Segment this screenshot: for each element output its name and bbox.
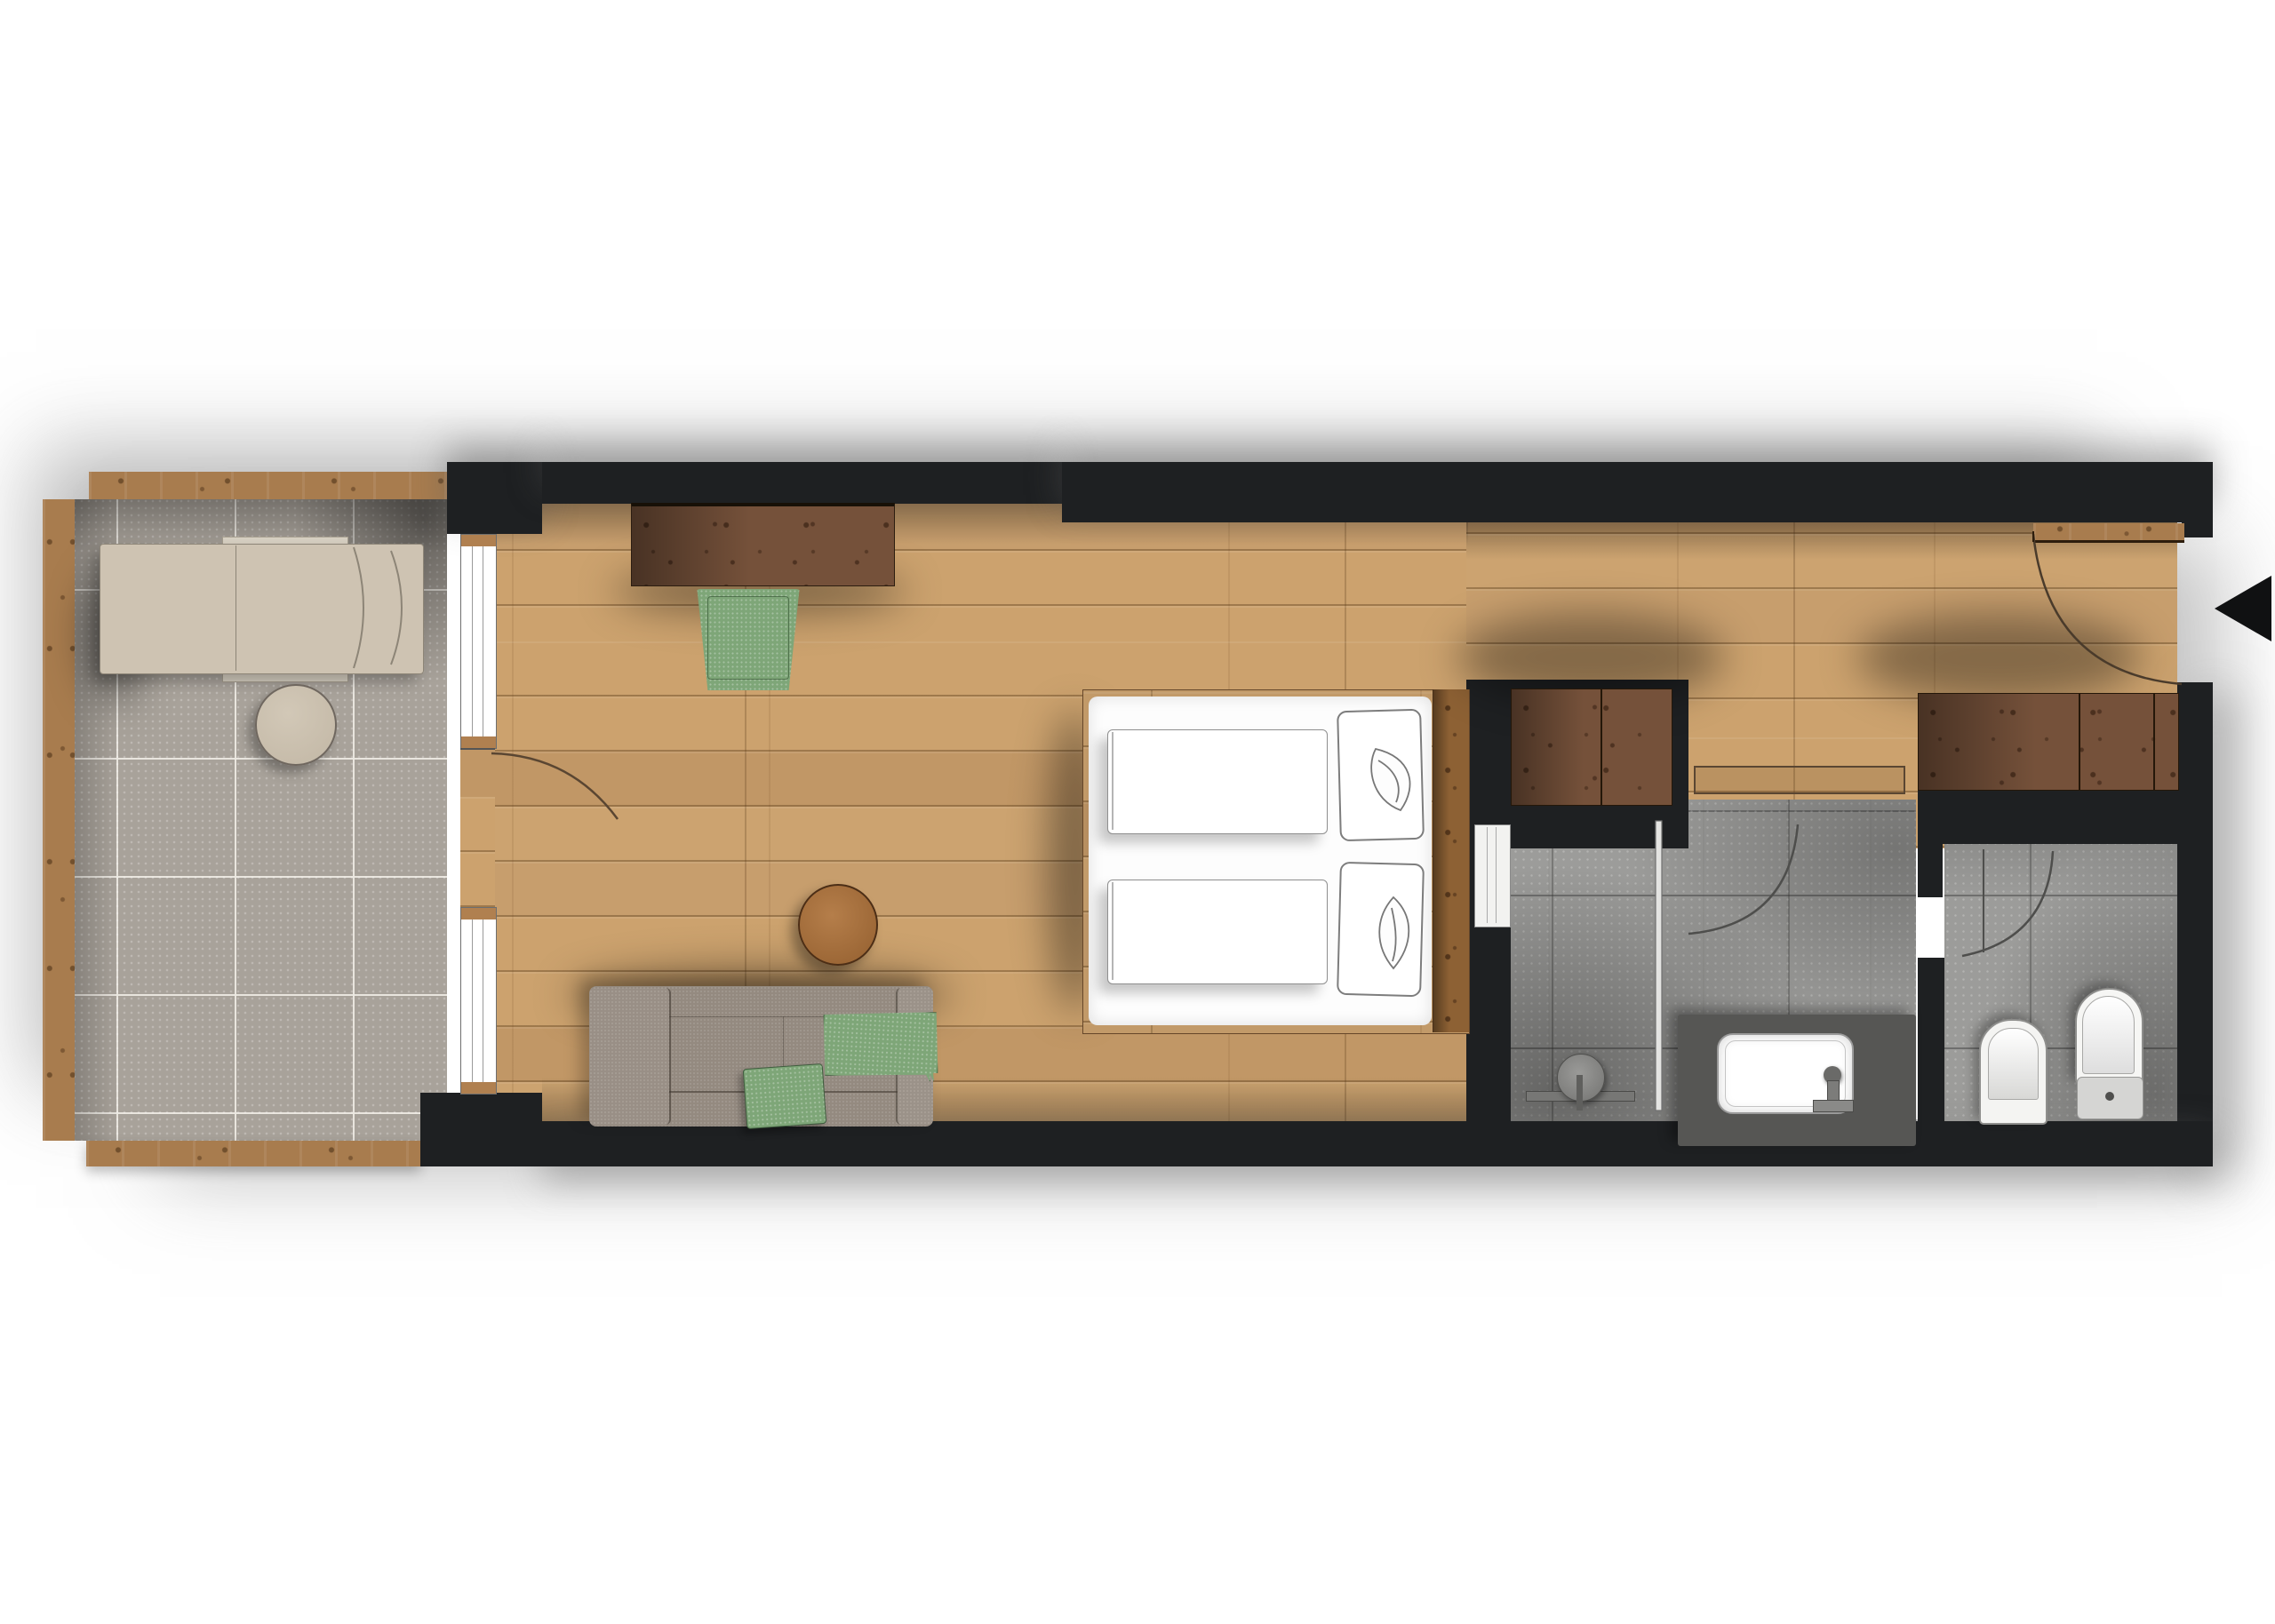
shower-stem <box>1577 1075 1583 1111</box>
bidet <box>1979 1019 2047 1125</box>
bed-duvet-1 <box>1107 729 1328 834</box>
sliding-door-bathroom <box>1474 824 1511 927</box>
toilet <box>2075 988 2143 1121</box>
wall-bath-wc-stub-top <box>1918 844 1943 897</box>
balcony-door-threshold <box>460 748 495 911</box>
wardrobe-1 <box>1511 689 1672 806</box>
balcony-edge-left <box>43 499 75 1141</box>
balcony-edge-bottom <box>86 1141 420 1166</box>
balcony-edge-top <box>89 472 449 499</box>
toilet-flush-button <box>2105 1092 2114 1101</box>
wall-right-upper-stub <box>2182 518 2213 537</box>
sofa-green-pillow <box>743 1063 827 1129</box>
wall-top-room <box>542 462 1062 504</box>
wall-bottom-left-corner <box>420 1093 542 1166</box>
entrance-arrow-icon <box>2215 576 2271 641</box>
bed-headboard <box>1433 689 1469 1032</box>
wall-wc-top-band <box>1918 789 2177 844</box>
balcony-side-table <box>255 684 337 766</box>
wall-top-left-notch <box>447 462 542 534</box>
wall-bath-wc-stub-bottom <box>1918 958 1944 1121</box>
sun-lounger <box>100 544 424 674</box>
desk-chair <box>695 589 802 690</box>
window-lower <box>460 907 497 1095</box>
wall-bottom <box>542 1121 2213 1166</box>
sofa-chaise <box>589 988 671 1125</box>
desk <box>631 503 895 586</box>
lounger-seam <box>235 545 236 671</box>
basin-faucet-plate <box>1813 1100 1854 1112</box>
wardrobe-2 <box>1918 693 2179 791</box>
sofa-green-throw <box>820 1007 941 1082</box>
entrance-door-leaf <box>2033 523 2184 543</box>
wall-right-lower <box>2177 682 2213 1166</box>
coffee-table <box>798 884 878 966</box>
window-upper <box>460 534 497 749</box>
wall-top-hall <box>1062 462 2213 522</box>
floor-plan-canvas <box>0 0 2275 1624</box>
bed-duvet-2 <box>1107 880 1328 984</box>
